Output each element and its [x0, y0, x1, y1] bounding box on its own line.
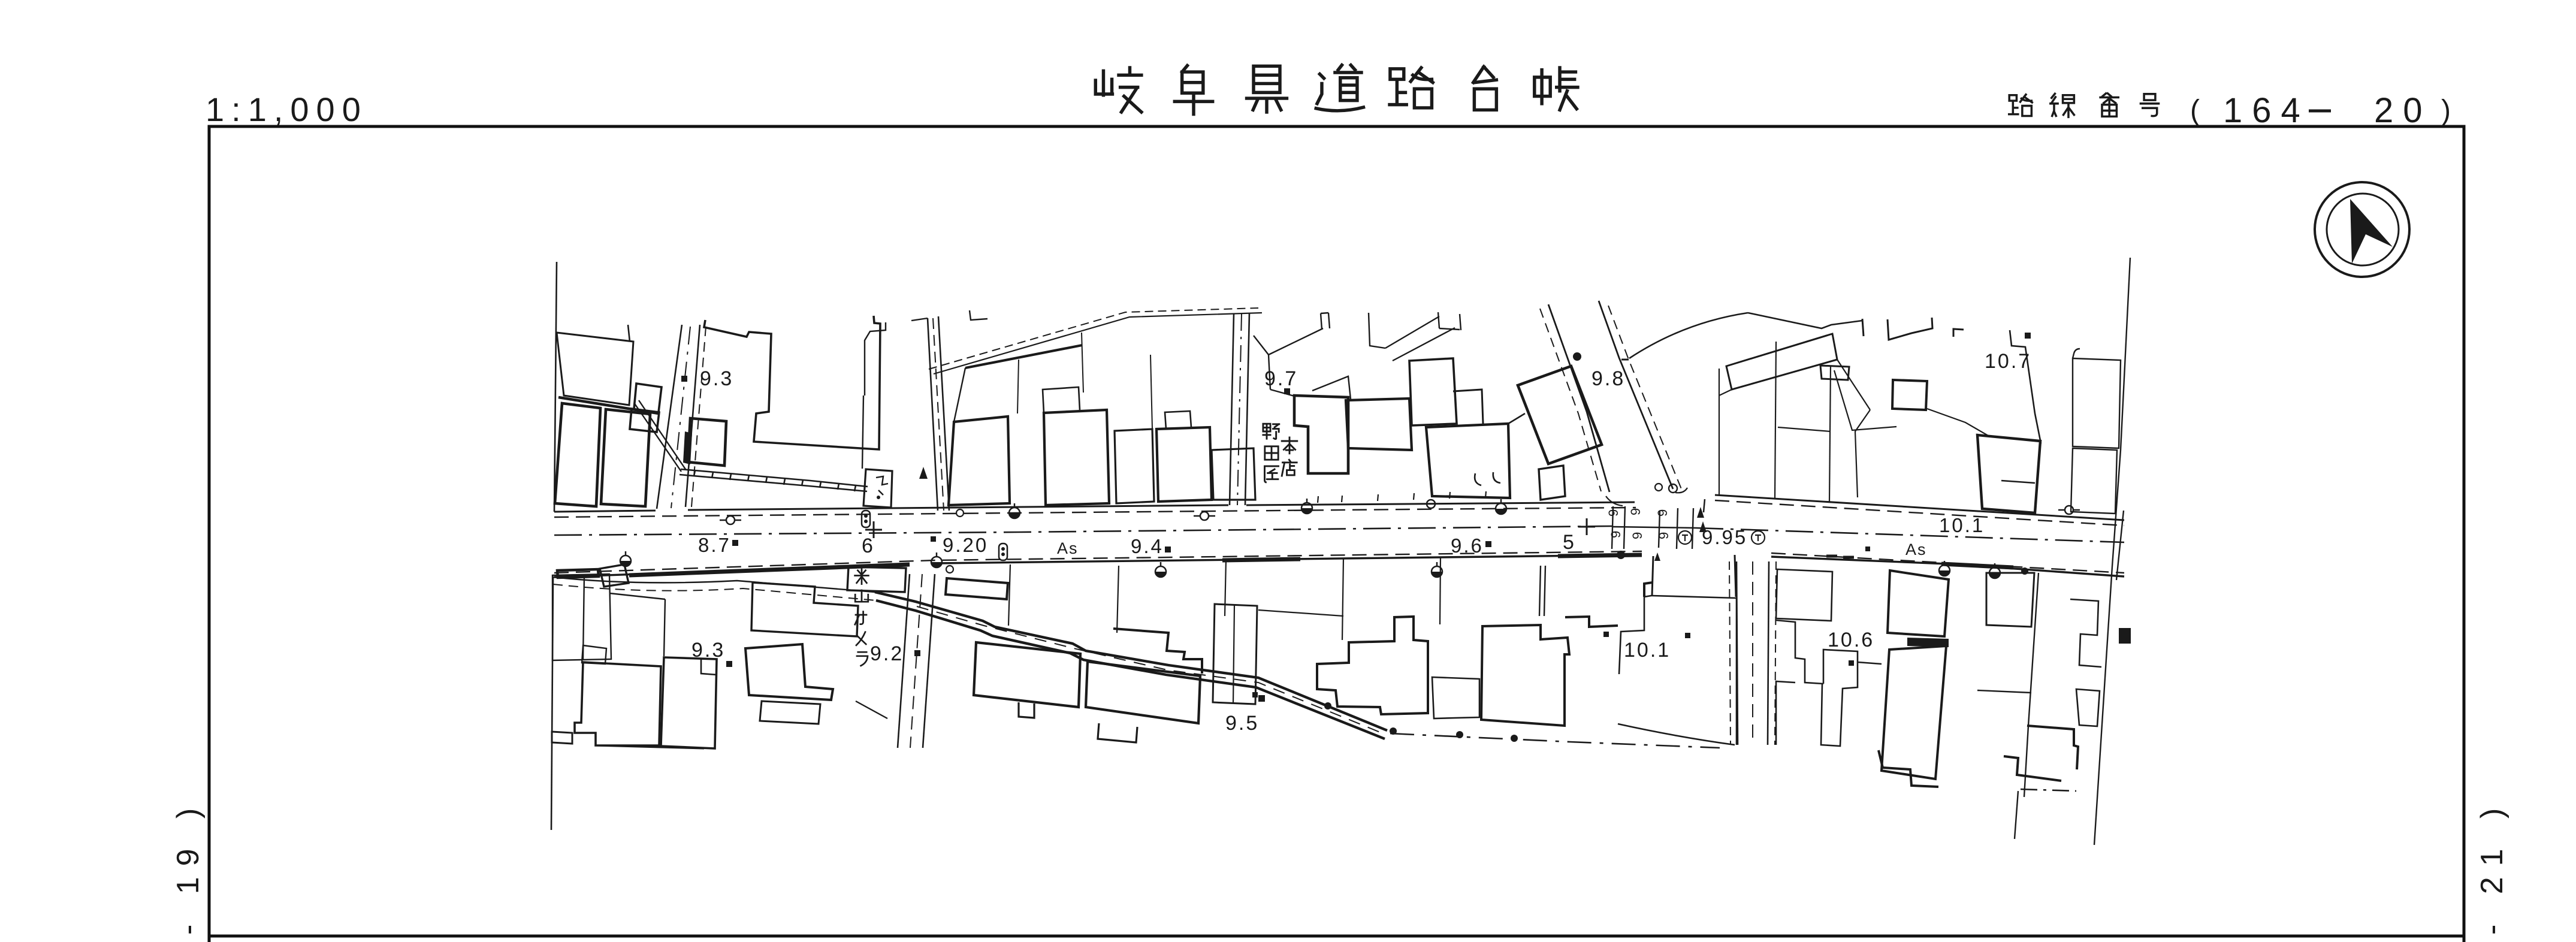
svg-text:10.6: 10.6: [1828, 629, 1874, 651]
svg-text:8.7: 8.7: [698, 534, 731, 556]
svg-text:10.1: 10.1: [1939, 514, 1985, 536]
svg-text:9: 9: [1630, 532, 1645, 539]
svg-text:9: 9: [1608, 531, 1623, 538]
svg-text:9.2: 9.2: [870, 642, 904, 665]
svg-text:(: (: [2190, 95, 2200, 126]
svg-text:9.3: 9.3: [691, 639, 725, 662]
svg-text:9.8: 9.8: [1591, 367, 1625, 390]
svg-text:9: 9: [1655, 509, 1670, 517]
svg-text:9: 9: [1656, 532, 1671, 539]
svg-text:): ): [2441, 95, 2451, 126]
svg-text:164: 164: [2223, 91, 2310, 130]
svg-text:9.3: 9.3: [700, 367, 733, 390]
svg-text:- 19 ): - 19 ): [171, 798, 206, 935]
svg-text:10.1: 10.1: [1624, 639, 1671, 662]
svg-text:9.7: 9.7: [1264, 367, 1298, 390]
svg-text:10.7: 10.7: [1985, 350, 2031, 373]
svg-text:9.5: 9.5: [1225, 712, 1259, 735]
svg-text:- 21 ): - 21 ): [2475, 798, 2509, 935]
svg-text:9.4: 9.4: [1131, 535, 1164, 557]
svg-text:As: As: [1057, 539, 1079, 557]
svg-text:9: 9: [1628, 508, 1643, 515]
svg-text:5: 5: [1563, 531, 1574, 554]
svg-text:As: As: [1905, 541, 1927, 558]
svg-text:9: 9: [1606, 509, 1621, 517]
svg-text:9.6: 9.6: [1451, 535, 1484, 557]
svg-text:20: 20: [2374, 91, 2432, 130]
svg-text:6: 6: [862, 535, 873, 557]
svg-text:1:1,000: 1:1,000: [206, 90, 368, 128]
svg-text:9.95: 9.95: [1702, 526, 1747, 548]
svg-text:9.20: 9.20: [943, 534, 988, 556]
